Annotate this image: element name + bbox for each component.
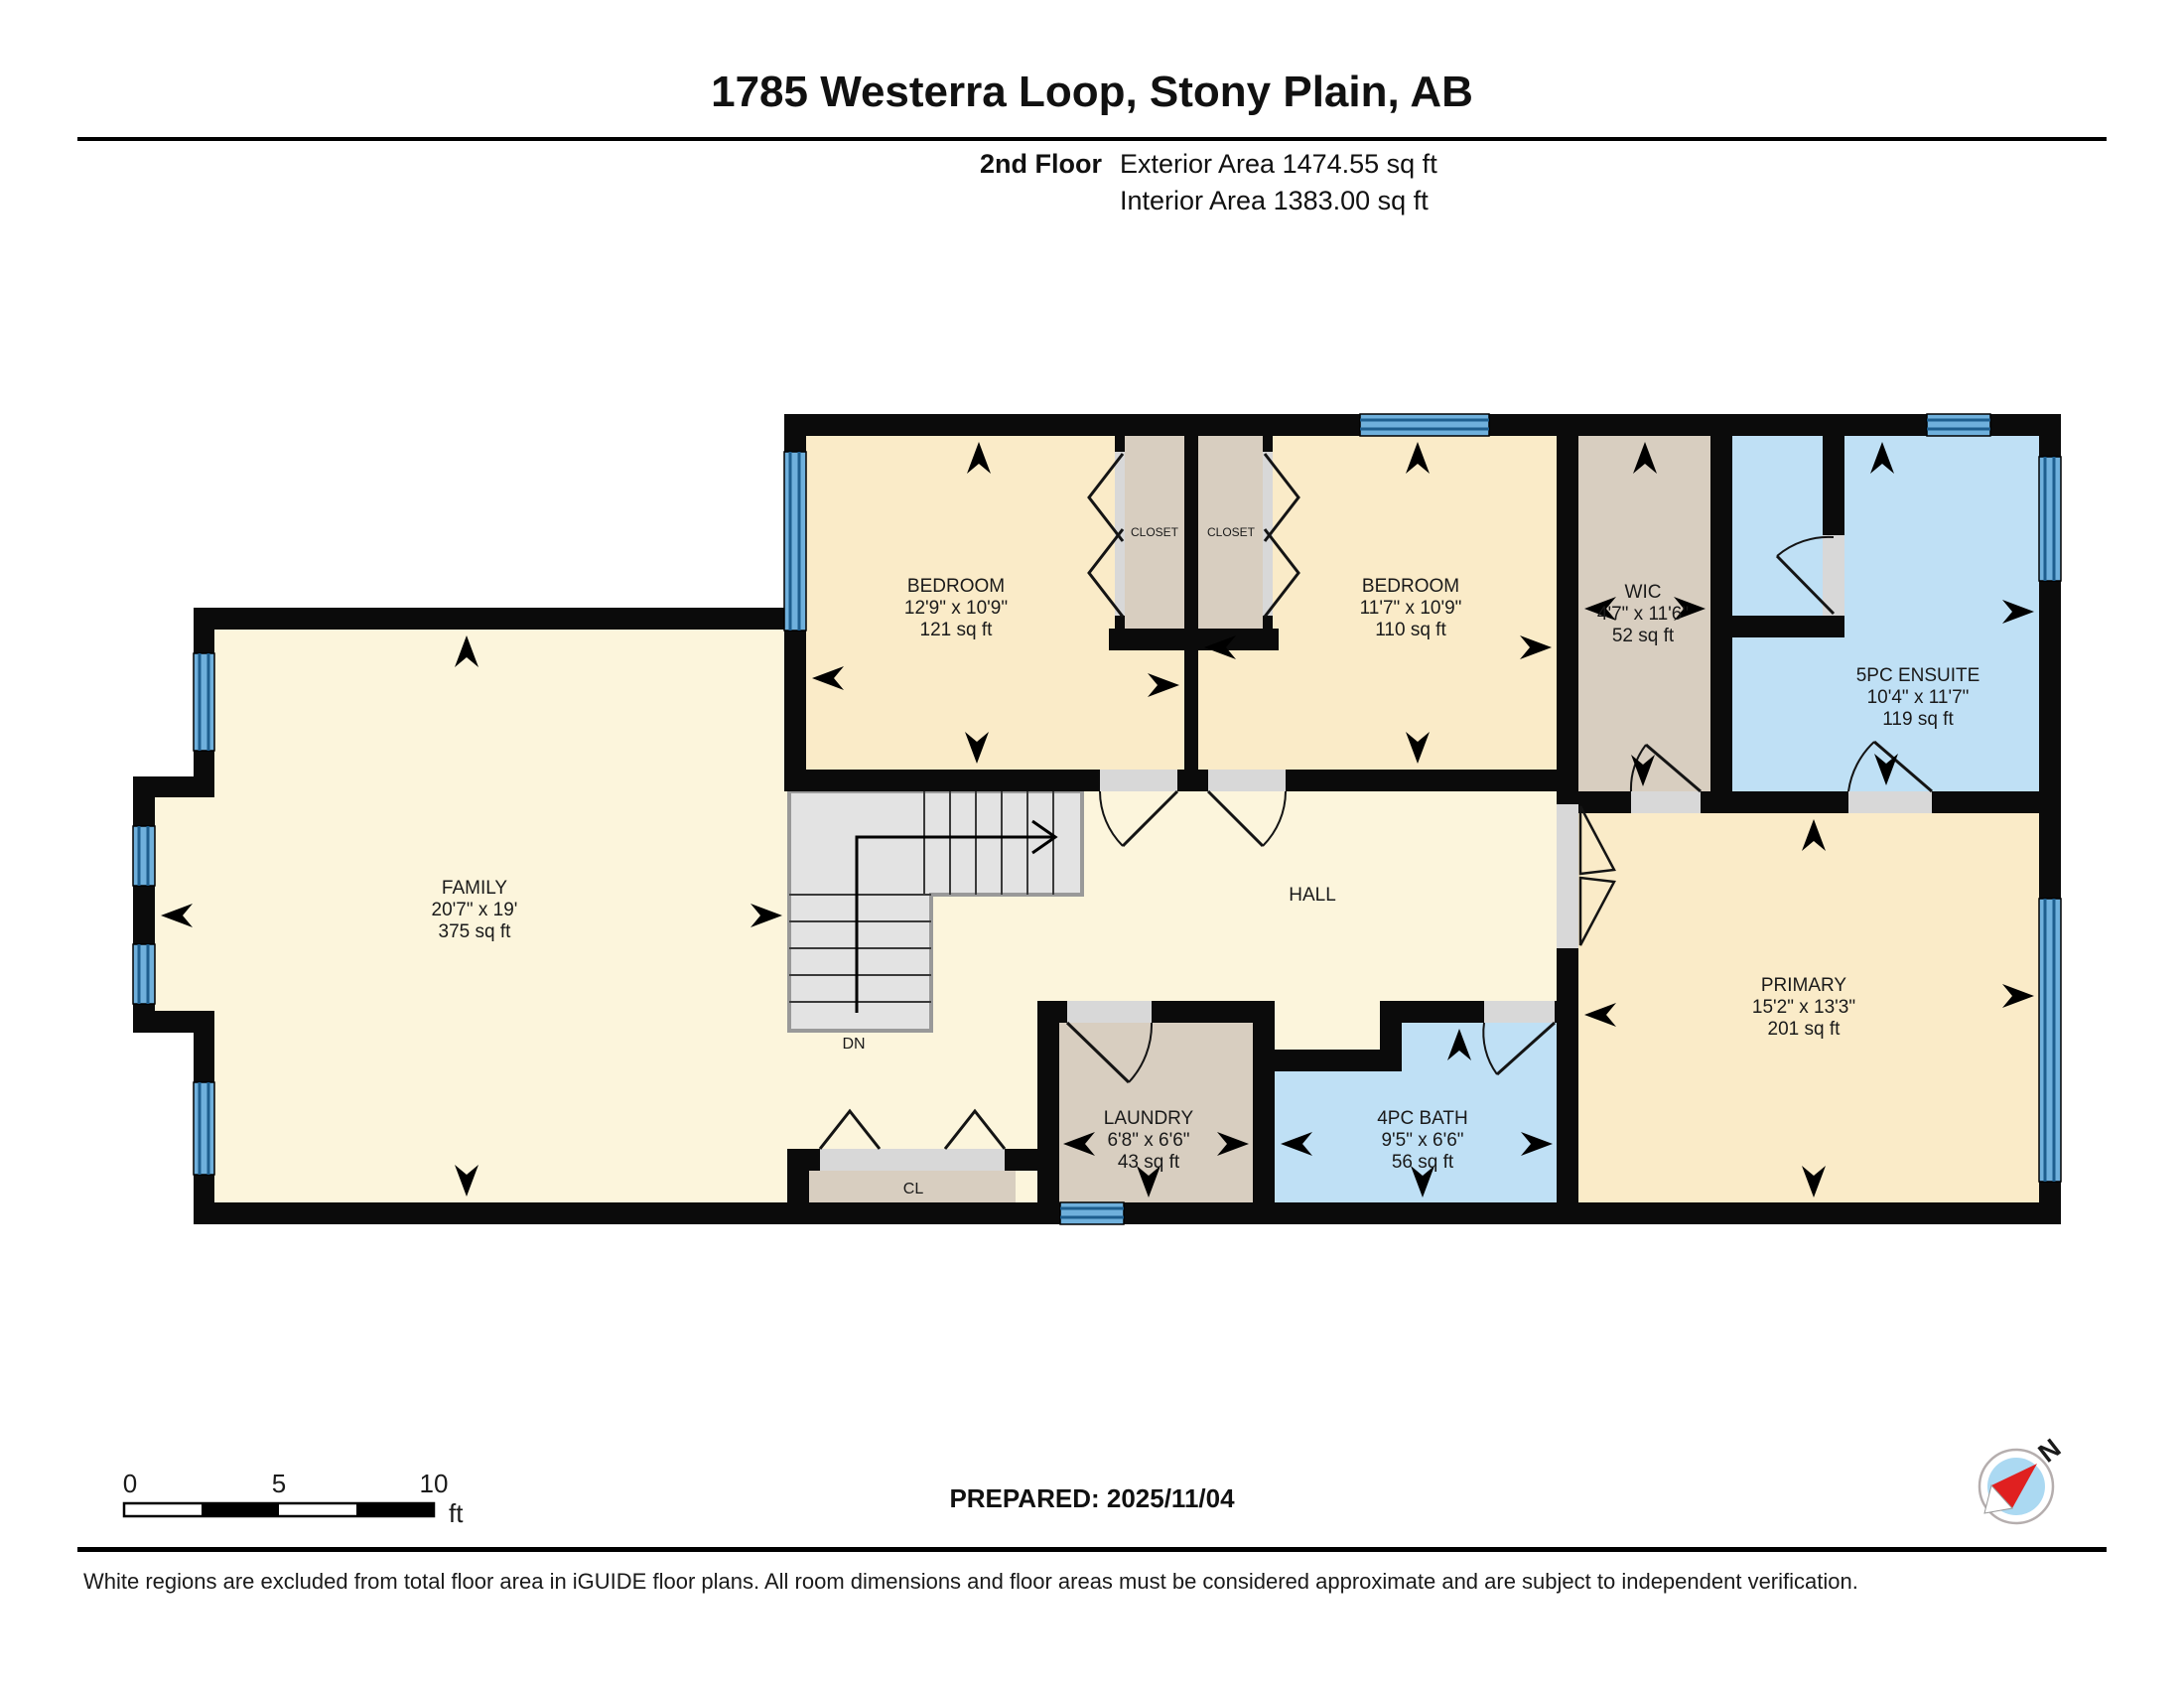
room-label-ensuite: 5PC ENSUITE [1856,665,1980,686]
window [1927,414,1990,436]
room-label-bedroom2: BEDROOM [1362,576,1459,597]
wall [1005,1149,1059,1171]
room-label-family: FAMILY [442,878,507,899]
door-opening [1631,791,1701,813]
wall [1557,791,1578,804]
window [2039,457,2061,581]
prepared-date: PREPARED: 2025/11/04 [0,1483,2184,1514]
stairs-dn-label: DN [842,1036,865,1053]
footer-rule [77,1547,2107,1552]
room-area-bedroom2: 110 sq ft [1375,620,1446,640]
window [194,653,214,751]
room-area-ensuite: 119 sq ft [1882,709,1954,730]
room-label-closet-left: CLOSET [1131,525,1179,539]
door-opening [1100,770,1177,791]
wall [1701,791,1848,813]
wall [1115,436,1125,452]
wall [1253,1001,1275,1224]
wall [1263,616,1273,629]
wall [1557,948,1578,1224]
window [2039,899,2061,1182]
wall [1184,436,1198,791]
wall [1710,436,1732,791]
wall [1402,1001,1484,1023]
room-fills [155,436,2039,1202]
door-opening [1823,535,1844,616]
room-dims-bath: 9'5" x 6'6" [1381,1130,1463,1151]
wall [194,608,806,630]
floorplan-drawing: FAMILY 20'7" x 19' 375 sq ft BEDROOM 12'… [0,0,2184,1688]
room-dims-bedroom2: 11'7" x 10'9" [1360,598,1462,619]
door-opening [820,1149,1005,1171]
wall [1732,616,1844,637]
room-dims-ensuite: 10'4" x 11'7" [1867,687,1970,708]
wall [1380,1001,1402,1071]
room-area-wic: 52 sq ft [1612,626,1675,646]
wall [1557,436,1578,791]
room-dims-primary: 15'2" x 13'3" [1752,997,1855,1018]
door-opening [1848,791,1932,813]
room-label-cl: CL [903,1181,924,1197]
window [1360,414,1489,436]
floorplan-page: 1785 Westerra Loop, Stony Plain, AB 2nd … [0,0,2184,1688]
wall [784,770,1100,791]
door-opening [1067,1001,1152,1023]
wall [787,1149,820,1171]
room-label-bedroom1: BEDROOM [907,576,1005,597]
door-opening [1484,1001,1555,1023]
disclaimer-text: White regions are excluded from total fl… [83,1569,1858,1595]
wall [1037,1001,1067,1023]
room-label-closet-right: CLOSET [1207,525,1256,539]
room-label-wic: WIC [1625,582,1662,603]
wall [1286,770,1578,791]
room-area-family: 375 sq ft [439,921,512,942]
room-area-laundry: 43 sq ft [1118,1152,1180,1173]
wall [1037,1001,1059,1224]
room-dims-bedroom1: 12'9" x 10'9" [904,598,1008,619]
window [194,1082,214,1175]
wall [1823,436,1844,535]
room-dims-laundry: 6'8" x 6'6" [1107,1130,1189,1151]
wall [194,1202,2061,1224]
room-area-primary: 201 sq ft [1768,1019,1842,1040]
door-opening [1557,804,1578,948]
room-label-laundry: LAUNDRY [1104,1108,1194,1129]
room-dims-wic: 4'7" x 11'6" [1597,604,1689,625]
wall [1109,629,1279,650]
window [1060,1202,1124,1224]
room-area-bedroom1: 121 sq ft [920,620,994,640]
room-dims-family: 20'7" x 19' [432,900,518,920]
window [133,826,155,886]
wall [1932,791,2039,813]
wall [1263,436,1273,452]
room-area-bath: 56 sq ft [1392,1152,1454,1173]
wall [1555,1001,1578,1023]
window [133,944,155,1004]
door-opening [1208,770,1286,791]
wall [1115,616,1125,629]
room-label-hall: HALL [1289,885,1336,906]
room-label-primary: PRIMARY [1761,975,1847,996]
window [784,452,806,631]
room-label-bath: 4PC BATH [1377,1108,1468,1129]
